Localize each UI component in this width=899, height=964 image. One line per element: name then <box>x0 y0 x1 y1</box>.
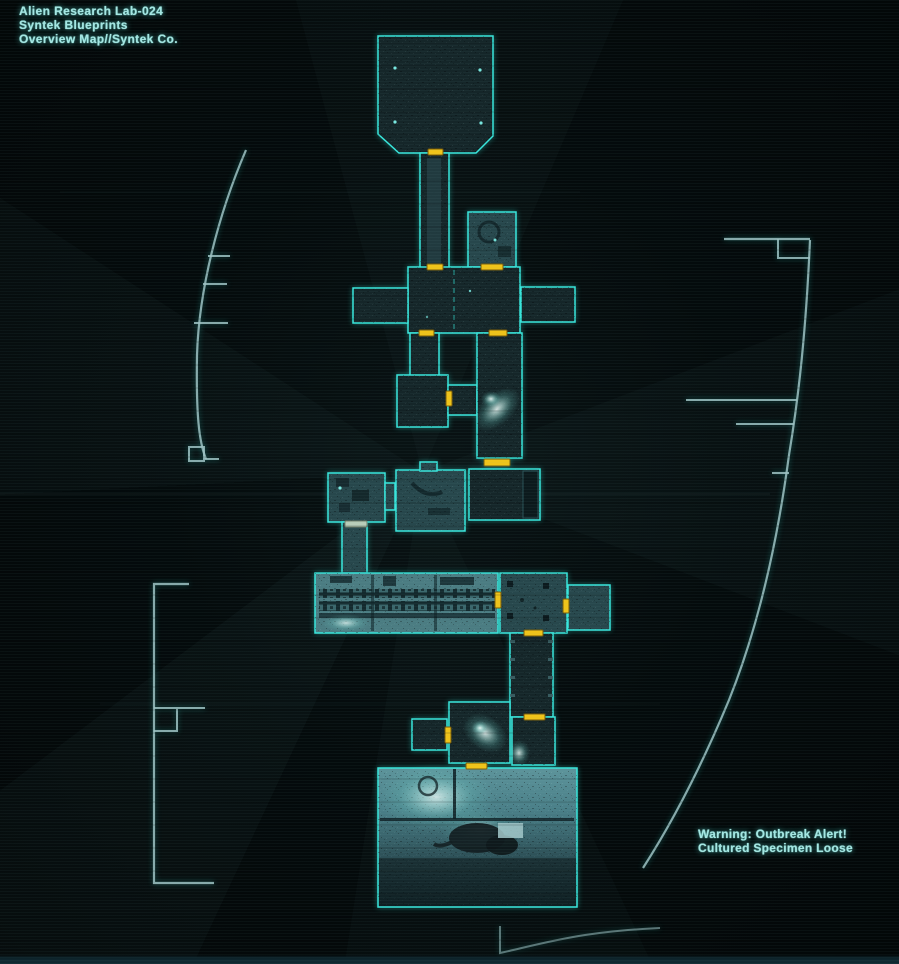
lab-floor-glow <box>322 614 370 632</box>
right-arc <box>643 240 810 868</box>
corridor-vent-6 <box>548 676 553 679</box>
lab-top-unit-1 <box>330 576 352 583</box>
lab-wall-line-2 <box>434 575 437 631</box>
annex-west-crate-3 <box>339 503 350 512</box>
corridor-vent-5 <box>510 676 515 679</box>
lab-top-unit-3 <box>440 577 474 585</box>
hub-speck-1 <box>469 290 471 292</box>
warning-line2: Cultured Specimen Loose <box>698 841 853 855</box>
ne-service-room-texture <box>468 212 516 267</box>
hub-speck-2 <box>426 316 428 318</box>
hub-south-corridor-texture <box>410 333 439 377</box>
annex-west-crate-2 <box>352 490 369 501</box>
lab-machine-row-1 <box>319 589 495 598</box>
door-hub-north-east <box>481 264 503 270</box>
corridor-vent-4 <box>548 658 553 661</box>
specimen-glow-observation-core <box>481 391 501 407</box>
hall-light-dot-2 <box>478 68 481 71</box>
corridor-vent-8 <box>548 694 553 697</box>
blueprint-screen: Alien Research Lab-024 Syntek Blueprints… <box>0 0 899 964</box>
door-storage-east <box>446 391 452 406</box>
annex-mid-bench <box>428 508 450 515</box>
door-corridor-south <box>524 714 545 720</box>
left-arc <box>197 150 246 459</box>
containment-hall-texture <box>378 36 493 153</box>
door-annex-corridor <box>345 521 367 527</box>
east-wing-room-texture <box>521 287 575 322</box>
map-title-line1: Alien Research Lab-024 <box>19 4 178 18</box>
door-lab-east <box>495 592 501 608</box>
map-title: Alien Research Lab-024 Syntek Blueprints… <box>19 4 178 46</box>
right-top-hook <box>778 239 810 258</box>
door-hub-north-west <box>427 264 443 270</box>
junction-glow <box>508 740 530 766</box>
pen-wall-horizontal <box>380 818 574 821</box>
outbreak-warning: Warning: Outbreak Alert! Cultured Specim… <box>698 827 853 855</box>
generator-pillar-4 <box>543 615 549 621</box>
hall-light-dot-4 <box>479 121 482 124</box>
corridor-vent-3 <box>510 658 515 661</box>
annex-west-dot <box>338 486 341 489</box>
corridor-vent-2 <box>548 640 553 643</box>
facility-map <box>0 0 899 964</box>
east-store-room-texture <box>568 585 610 630</box>
west-wing-room-texture <box>353 288 408 323</box>
door-generator-south <box>524 630 543 636</box>
hall-light-dot-3 <box>393 120 396 123</box>
central-hub-room-texture <box>408 267 520 333</box>
generator-debris-1 <box>520 598 524 602</box>
warning-line1: Warning: Outbreak Alert! <box>698 827 853 841</box>
door-hub-south-west <box>419 330 434 336</box>
south-closet-texture <box>412 719 447 750</box>
west-storage-room-texture <box>397 375 448 427</box>
pen-wall-vertical <box>453 769 456 819</box>
lab-top-unit-2 <box>383 576 396 586</box>
door-pen-north <box>466 763 487 769</box>
generator-pillar-3 <box>507 613 513 619</box>
annex-east-dark-bay <box>523 471 538 518</box>
map-title-line3: Overview Map//Syntek Co. <box>19 32 178 46</box>
lab-wall-line-1 <box>371 575 374 631</box>
annex-corridor-texture <box>342 522 367 573</box>
generator-debris-2 <box>534 607 537 610</box>
left-bracket-detail <box>154 708 205 731</box>
door-containment-south <box>428 149 443 155</box>
map-title-line2: Syntek Blueprints <box>19 18 178 32</box>
ne-room-dot <box>494 239 497 242</box>
hall-light-dot-1 <box>393 66 396 69</box>
corridor-floor-light <box>427 158 441 264</box>
lab-annex-west-bay-texture <box>385 483 395 510</box>
lab-annex-mid-vent-texture <box>420 462 437 471</box>
generator-pillar-2 <box>543 583 549 589</box>
lab-machine-row-2 <box>319 601 495 611</box>
left-arc-hook <box>189 447 219 461</box>
specimen-glow-incubation-core <box>472 721 488 735</box>
door-hub-south-east <box>489 330 507 336</box>
lab-annex-mid-texture <box>396 470 465 531</box>
corridor-vent-1 <box>510 640 515 643</box>
south-corridor-texture <box>510 633 553 717</box>
corridor-vent-7 <box>510 694 515 697</box>
pen-floor-shade <box>379 858 576 906</box>
door-generator-east <box>563 599 569 613</box>
bottom-strip <box>0 955 899 964</box>
annex-west-crate-1 <box>336 478 349 487</box>
door-closet-east <box>445 727 451 743</box>
door-observation-south <box>484 459 510 466</box>
pen-light-object <box>498 823 523 838</box>
bottom-curve <box>500 926 660 953</box>
ne-room-crate <box>498 246 511 257</box>
left-bracket <box>154 584 214 883</box>
generator-pillar-1 <box>507 581 513 587</box>
